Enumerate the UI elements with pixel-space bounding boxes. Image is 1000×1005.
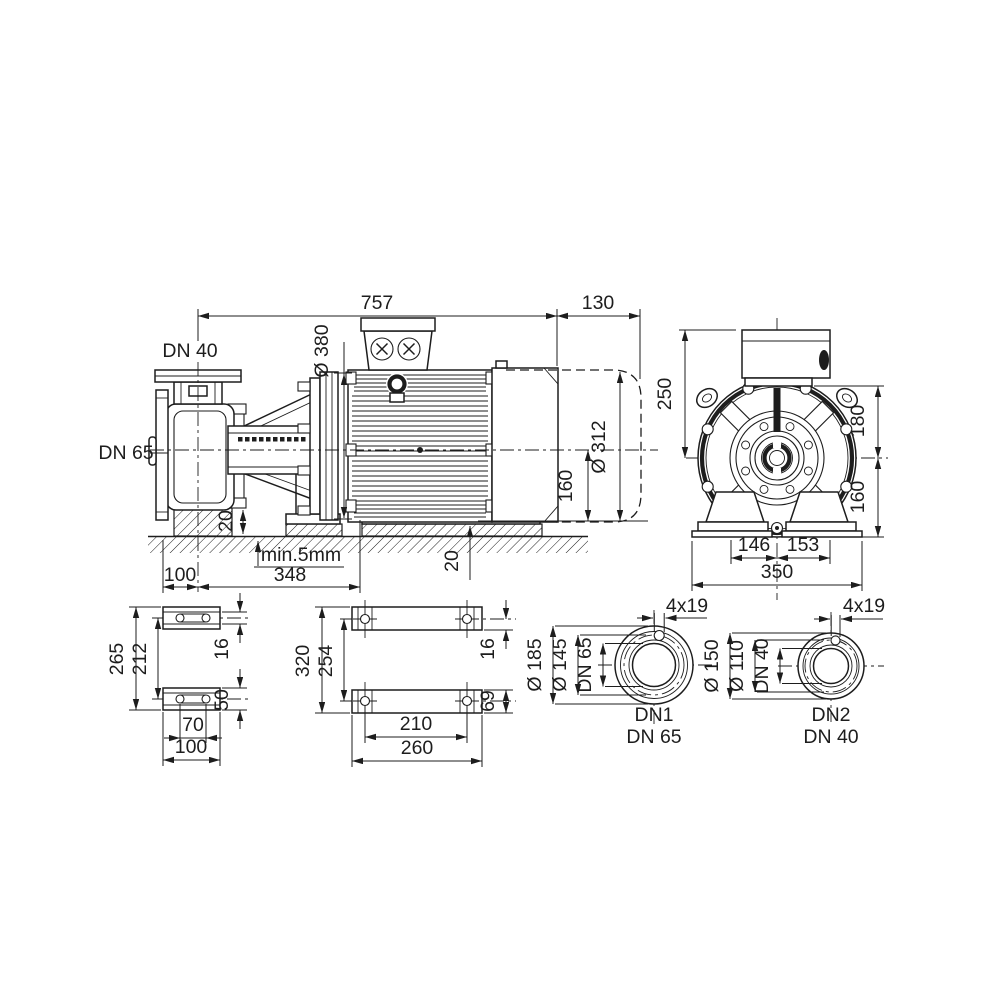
end-view: 250 180 160 146 153 350 (654, 318, 888, 600)
dim-motor-foot-length: 260 (401, 737, 434, 759)
dim-pump-foot-slots: 70 (182, 714, 204, 736)
flange-bolt-hole (831, 636, 840, 645)
technical-drawing-canvas: 757 130 DN 40 DN 65 Ø 380 Ø 312 160 20 2… (0, 0, 1000, 1000)
dim-pump-foot-web: 16 (211, 638, 233, 660)
lifting-eyebolt (386, 373, 408, 402)
pump-foot-view: 265 212 16 50 70 100 (106, 593, 250, 766)
dim-pump-foot-length: 100 (175, 736, 208, 758)
flange1-caption-line1: DN1 (634, 704, 673, 726)
dim-motor-foot-width: 69 (477, 690, 499, 712)
dim-motor-flange-dia: Ø 380 (311, 324, 333, 377)
dim-pump-foot-overall: 265 (106, 643, 128, 676)
dim-foot-offset: 100 (164, 564, 197, 586)
dim-foot-pad-height: 20 (441, 550, 463, 572)
cable-gland-icon (819, 350, 829, 370)
dim-flange1-outer: Ø 185 (524, 638, 546, 691)
dim-motor-foot-pitch: 210 (400, 713, 433, 735)
box-mount-plate (745, 378, 812, 386)
motor-foot-view: 320 254 16 69 210 260 (292, 600, 516, 767)
cooling-fins (352, 396, 488, 496)
flange-view-dn2: 4x19 Ø 150 Ø 110 DN 40 DN2 DN 40 (701, 595, 885, 748)
keyway (773, 468, 781, 474)
label-discharge-port: DN 40 (162, 340, 217, 362)
dim-motor-foot-edge: 16 (477, 638, 499, 660)
dim-right-foot-offset: 153 (787, 534, 820, 556)
motor-foot-block (362, 524, 542, 536)
dim-flange2-outer: Ø 150 (701, 639, 723, 692)
motor-body (346, 370, 496, 522)
dim-overall-length: 757 (361, 292, 394, 314)
lantern-foot-block (286, 524, 342, 536)
dim-pedestal-height: 20 (215, 510, 237, 532)
note-grout-gap: min.5mm (261, 544, 341, 566)
flange-bolt-hole (654, 631, 664, 641)
pump-foot-top (163, 607, 220, 629)
label-suction-port: DN 65 (98, 442, 153, 464)
dim-motor-dia: Ø 312 (588, 420, 610, 473)
dim-dismantling-space: 130 (582, 292, 615, 314)
dim-motor-foot-holes: 254 (315, 645, 337, 678)
dim-left-foot-offset: 146 (738, 534, 771, 556)
pump-dimension-drawing: 757 130 DN 40 DN 65 Ø 380 Ø 312 160 20 2… (0, 0, 1000, 1000)
dim-flange2-nominal: DN 40 (751, 638, 773, 693)
dim-base-width: 350 (761, 561, 794, 583)
dim-flange2-bolt-circle: Ø 110 (726, 640, 748, 692)
flange2-caption-line1: DN2 (811, 704, 850, 726)
dim-center-to-foot: 348 (274, 564, 307, 586)
side-view: 757 130 DN 40 DN 65 Ø 380 Ø 312 160 20 2… (98, 292, 658, 593)
dim-flange1-nominal: DN 65 (574, 637, 596, 692)
flange1-caption-line2: DN 65 (626, 726, 681, 748)
end-terminal-box (742, 330, 830, 378)
dim-motor-foot-overall: 320 (292, 645, 314, 678)
suction-flange (156, 390, 168, 520)
dim-shaft-height: 160 (555, 470, 577, 503)
motor-foot-top (352, 600, 482, 638)
keyway (773, 442, 781, 448)
dim-pump-foot-holes: 212 (129, 643, 151, 676)
dim-pump-foot-width: 50 (211, 689, 233, 711)
terminal-box (361, 318, 435, 370)
dim-flange1-bolt-holes: 4x19 (666, 595, 708, 617)
flange2-caption-line2: DN 40 (803, 726, 858, 748)
dim-flange-to-center: 180 (847, 405, 869, 438)
ground (148, 537, 588, 554)
dim-center-to-base: 160 (847, 481, 869, 514)
dim-flange1-bolt-circle: Ø 145 (549, 638, 571, 691)
flange-view-dn1: 4x19 Ø 185 Ø 145 DN 65 DN1 DN 65 (524, 595, 712, 748)
dim-center-to-box-top: 250 (654, 378, 676, 411)
dim-flange2-bolt-holes: 4x19 (843, 595, 885, 617)
